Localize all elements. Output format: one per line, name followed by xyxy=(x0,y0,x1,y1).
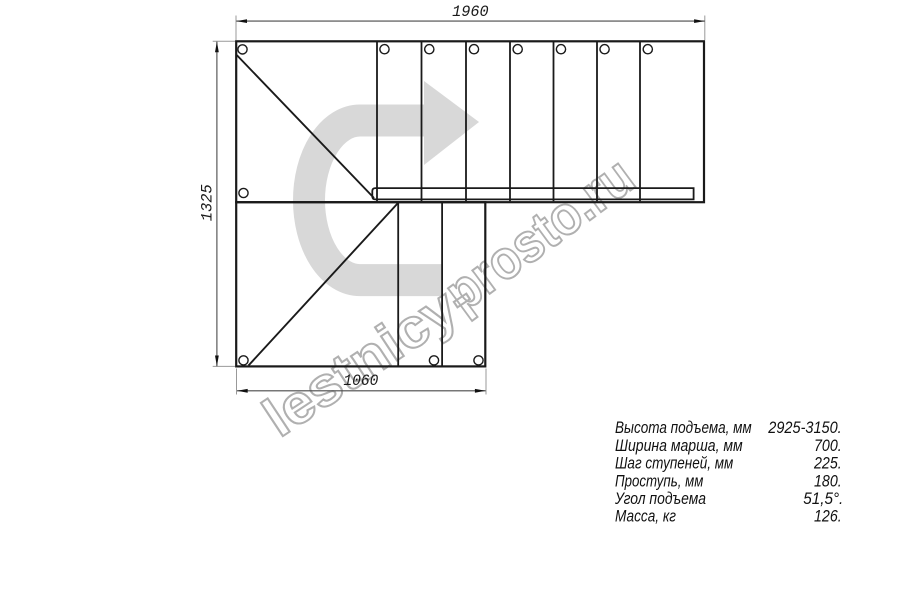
svg-text:1325: 1325 xyxy=(199,184,217,221)
svg-text:180.: 180. xyxy=(814,471,842,490)
svg-text:Шаг ступеней, мм: Шаг ступеней, мм xyxy=(615,454,734,473)
svg-text:2925-3150.: 2925-3150. xyxy=(767,418,841,437)
svg-text:Масса, кг: Масса, кг xyxy=(615,507,676,526)
svg-text:126.: 126. xyxy=(814,507,842,526)
svg-text:Высота подъема, мм: Высота подъема, мм xyxy=(615,418,752,437)
svg-text:Проступь, мм: Проступь, мм xyxy=(615,471,704,490)
svg-text:1960: 1960 xyxy=(452,3,489,21)
svg-text:Ширина марша, мм: Ширина марша, мм xyxy=(615,436,743,455)
svg-text:1060: 1060 xyxy=(343,372,378,390)
svg-text:prosto.ru: prosto.ru xyxy=(433,144,645,323)
svg-text:51,5°.: 51,5°. xyxy=(803,489,843,508)
svg-text:Угол подъема: Угол подъема xyxy=(614,489,706,508)
svg-text:700.: 700. xyxy=(814,436,842,455)
svg-text:225.: 225. xyxy=(813,454,842,473)
